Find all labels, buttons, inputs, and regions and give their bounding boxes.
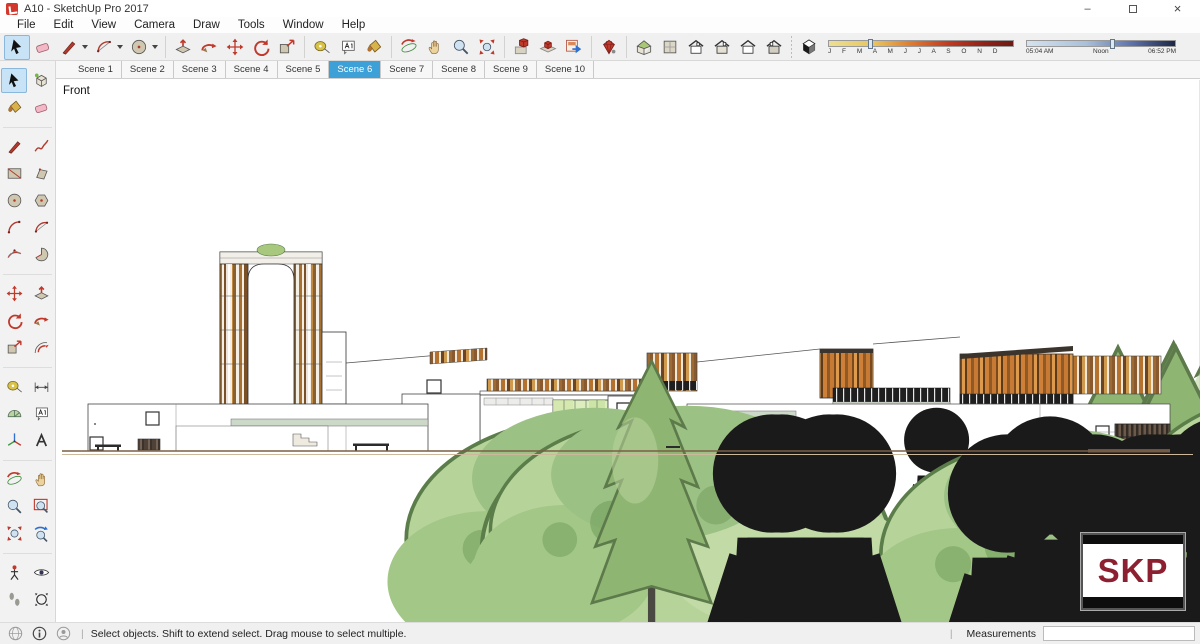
- menu-file[interactable]: File: [8, 17, 45, 33]
- status-separator: |: [81, 628, 84, 640]
- zoom-window-icon: [32, 497, 51, 516]
- select-icon: [5, 71, 24, 90]
- tab-scene-6[interactable]: Scene 6: [329, 61, 381, 78]
- zoom-previous-button[interactable]: [28, 521, 54, 546]
- toolbar-separator: [3, 364, 52, 368]
- rectangle-button[interactable]: [1, 161, 27, 186]
- freehand-icon: [32, 137, 51, 156]
- tab-scene-3[interactable]: Scene 3: [174, 61, 226, 78]
- zoom-icon: [5, 497, 24, 516]
- look-around-button[interactable]: [28, 560, 54, 585]
- zoom-extents-icon: [5, 524, 24, 543]
- share-component-button[interactable]: [561, 35, 587, 60]
- status-separator: |: [950, 628, 953, 640]
- offset-button[interactable]: [28, 335, 54, 360]
- pan-tool-button[interactable]: [28, 467, 54, 492]
- follow-me-button[interactable]: [196, 35, 222, 60]
- circle-tool-button[interactable]: [1, 188, 27, 213]
- time-end-label: 06:52 PM: [1148, 48, 1176, 55]
- toolbar-separator: [3, 457, 52, 461]
- tab-scene-2[interactable]: Scene 2: [122, 61, 174, 78]
- move-button[interactable]: [222, 35, 248, 60]
- top-view-icon: [660, 37, 680, 57]
- position-camera-icon: [5, 563, 24, 582]
- circle-icon: [129, 37, 149, 57]
- close-button[interactable]: ×: [1155, 0, 1200, 17]
- share-model-button[interactable]: [535, 35, 561, 60]
- arc-icon: [5, 218, 24, 237]
- select-tool-button[interactable]: [1, 68, 27, 93]
- tab-scene-10[interactable]: Scene 10: [537, 61, 594, 78]
- rotate-icon: [5, 311, 24, 330]
- follow-me-icon: [32, 311, 51, 330]
- three-point-arc-button[interactable]: [1, 242, 27, 267]
- back-view-button[interactable]: [735, 35, 761, 60]
- circle-icon: [5, 191, 24, 210]
- paint-bucket-icon: [5, 98, 24, 117]
- menu-draw[interactable]: Draw: [184, 17, 229, 33]
- orbit-tool-button[interactable]: [1, 467, 27, 492]
- eraser-icon: [32, 98, 51, 117]
- menu-tools[interactable]: Tools: [229, 17, 274, 33]
- scale-tool-button[interactable]: [1, 335, 27, 360]
- text-tool-button[interactable]: [28, 401, 54, 426]
- protractor-icon: [5, 404, 24, 423]
- orbit-icon: [399, 37, 419, 57]
- shadow-time-slider[interactable]: 05:04 AM Noon 06:52 PM: [1026, 40, 1176, 55]
- status-hint: Select objects. Shift to extend select. …: [91, 628, 407, 640]
- right-view-button[interactable]: [709, 35, 735, 60]
- line-icon: [59, 37, 79, 57]
- paint-bucket-button[interactable]: [1, 95, 27, 120]
- make-component-icon: [32, 71, 51, 90]
- rotated-rectangle-button[interactable]: [28, 161, 54, 186]
- right-buildings: [697, 337, 1161, 406]
- top-view-button[interactable]: [657, 35, 683, 60]
- orbit-button[interactable]: [396, 35, 422, 60]
- menu-view[interactable]: View: [82, 17, 125, 33]
- line-icon: [5, 137, 24, 156]
- arch-tower: [220, 244, 346, 404]
- push-pull-icon: [173, 37, 193, 57]
- freehand-button[interactable]: [28, 134, 54, 159]
- move-icon: [5, 284, 24, 303]
- share-component-icon: [564, 37, 584, 57]
- toolbar-separator: [591, 36, 592, 58]
- front-view-icon: [686, 37, 706, 57]
- rotate-icon: [251, 37, 271, 57]
- zoom-window-button[interactable]: [28, 494, 54, 519]
- rectangle-icon: [5, 164, 24, 183]
- arc-tool-button[interactable]: [1, 215, 27, 240]
- pie-icon: [32, 245, 51, 264]
- section-plane-button[interactable]: [28, 587, 54, 612]
- offset-icon: [32, 338, 51, 357]
- minimize-button[interactable]: –: [1065, 0, 1110, 17]
- rotate-button[interactable]: [248, 35, 274, 60]
- text-icon: [32, 404, 51, 423]
- pie-button[interactable]: [28, 242, 54, 267]
- zoom-button[interactable]: [448, 35, 474, 60]
- zoom-previous-icon: [32, 524, 51, 543]
- tab-scene-4[interactable]: Scene 4: [226, 61, 278, 78]
- chevron-down-icon[interactable]: [152, 45, 158, 49]
- text-button[interactable]: [335, 35, 361, 60]
- eraser-button[interactable]: [28, 95, 54, 120]
- back-view-icon: [738, 37, 758, 57]
- tab-scene-8[interactable]: Scene 8: [433, 61, 485, 78]
- menu-help[interactable]: Help: [333, 17, 375, 33]
- time-start-label: 05:04 AM: [1026, 48, 1053, 55]
- tape-measure-icon: [312, 37, 332, 57]
- toolbar-separator: [165, 36, 166, 58]
- left-view-icon: [764, 37, 784, 57]
- dimension-button[interactable]: [28, 374, 54, 399]
- get-models-button[interactable]: [509, 35, 535, 60]
- sketchup-logo-icon: [6, 3, 18, 15]
- walk-icon: [5, 590, 24, 609]
- scale-icon: [277, 37, 297, 57]
- toolbar-separator: [3, 124, 52, 128]
- iso-view-icon: [634, 37, 654, 57]
- 3d-text-icon: [32, 431, 51, 450]
- measurements-input[interactable]: [1043, 626, 1195, 641]
- title-bar: A10 - SketchUp Pro 2017 – ×: [0, 0, 1200, 17]
- account-icon[interactable]: [56, 626, 71, 641]
- axes-button[interactable]: [1, 428, 27, 453]
- large-tool-set: [0, 61, 56, 622]
- follow-me-icon: [199, 37, 219, 57]
- polygon-button[interactable]: [28, 188, 54, 213]
- orbit-icon: [5, 470, 24, 489]
- skp-watermark: SKP: [1081, 533, 1185, 610]
- pan-icon: [32, 470, 51, 489]
- rotate-tool-button[interactable]: [1, 308, 27, 333]
- date-slider-thumb[interactable]: [868, 39, 873, 49]
- tab-scene-9[interactable]: Scene 9: [485, 61, 537, 78]
- circle-button[interactable]: [126, 35, 152, 60]
- arc-button[interactable]: [91, 35, 117, 60]
- scale-button[interactable]: [274, 35, 300, 60]
- two-point-arc-button[interactable]: [28, 215, 54, 240]
- front-view-button[interactable]: [683, 35, 709, 60]
- toolbar-separator: [3, 550, 52, 554]
- tab-scene-1[interactable]: Scene 1: [70, 61, 122, 78]
- move-tool-button[interactable]: [1, 281, 27, 306]
- geolocation-icon[interactable]: [8, 626, 23, 641]
- eraser-button[interactable]: [30, 35, 56, 60]
- protractor-button[interactable]: [1, 401, 27, 426]
- select-button[interactable]: [4, 35, 30, 60]
- tape-measure-tool-button[interactable]: [1, 374, 27, 399]
- push-pull-tool-button[interactable]: [28, 281, 54, 306]
- scene-tabs-bar: Scene 1 Scene 2 Scene 3 Scene 4 Scene 5 …: [56, 61, 1200, 79]
- zoom-extents-tool-button[interactable]: [1, 521, 27, 546]
- paint-bucket-button[interactable]: [361, 35, 387, 60]
- tab-scene-7[interactable]: Scene 7: [381, 61, 433, 78]
- status-bar: | Select objects. Shift to extend select…: [0, 622, 1200, 644]
- maximize-button[interactable]: [1110, 0, 1155, 17]
- time-slider-thumb[interactable]: [1110, 39, 1115, 49]
- measurements-label: Measurements: [967, 628, 1036, 640]
- date-slider-track[interactable]: [828, 40, 1014, 47]
- zoom-tool-button[interactable]: [1, 494, 27, 519]
- scale-icon: [5, 338, 24, 357]
- toolbar-separator: [391, 36, 392, 58]
- toolbar-separator: [791, 36, 792, 58]
- watermark-text: SKP: [1083, 544, 1183, 597]
- three-point-arc-icon: [5, 245, 24, 264]
- model-canvas[interactable]: [56, 80, 1200, 622]
- follow-me-tool-button[interactable]: [28, 308, 54, 333]
- share-model-icon: [538, 37, 558, 57]
- line-tool-button[interactable]: [1, 134, 27, 159]
- arc-icon: [94, 37, 114, 57]
- move-icon: [225, 37, 245, 57]
- zoom-extents-icon: [477, 37, 497, 57]
- tape-measure-icon: [5, 377, 24, 396]
- axes-icon: [5, 431, 24, 450]
- line-button[interactable]: [56, 35, 82, 60]
- watermark-bottom-bar: [1083, 597, 1183, 608]
- tab-scene-5[interactable]: Scene 5: [278, 61, 330, 78]
- info-icon[interactable]: [32, 626, 47, 641]
- zoom-icon: [451, 37, 471, 57]
- iso-view-button[interactable]: [631, 35, 657, 60]
- push-pull-button[interactable]: [170, 35, 196, 60]
- time-noon-label: Noon: [1093, 48, 1109, 55]
- eraser-icon: [33, 37, 53, 57]
- shadows-icon: [799, 37, 819, 57]
- paint-bucket-icon: [364, 37, 384, 57]
- time-slider-track[interactable]: [1026, 40, 1176, 47]
- 3d-text-button[interactable]: [28, 428, 54, 453]
- menu-edit[interactable]: Edit: [45, 17, 83, 33]
- toolbar-separator: [3, 271, 52, 275]
- look-around-icon: [32, 563, 51, 582]
- position-camera-button[interactable]: [1, 560, 27, 585]
- polygon-icon: [32, 191, 51, 210]
- text-icon: [338, 37, 358, 57]
- toolbar-separator: [304, 36, 305, 58]
- date-slider-months: J F M A M J J A S O N D: [828, 48, 1014, 55]
- chevron-down-icon[interactable]: [82, 45, 88, 49]
- menu-bar: File Edit View Camera Draw Tools Window …: [0, 17, 1200, 34]
- walk-button[interactable]: [1, 587, 27, 612]
- shadows-toggle-button[interactable]: [796, 35, 822, 60]
- toolbar-separator: [626, 36, 627, 58]
- maximize-icon: [1129, 5, 1137, 13]
- menu-window[interactable]: Window: [274, 17, 333, 33]
- extension-warehouse-icon: [599, 37, 619, 57]
- window-title: A10 - SketchUp Pro 2017: [24, 3, 149, 15]
- select-icon: [7, 37, 27, 57]
- dimension-icon: [32, 377, 51, 396]
- toolbar-separator: [504, 36, 505, 58]
- get-models-icon: [512, 37, 532, 57]
- chevron-down-icon[interactable]: [117, 45, 123, 49]
- make-component-button[interactable]: [28, 68, 54, 93]
- zoom-extents-button[interactable]: [474, 35, 500, 60]
- model-viewport[interactable]: Front: [56, 80, 1200, 622]
- section-plane-icon: [32, 590, 51, 609]
- elevation-drawing: [62, 244, 1200, 622]
- tape-measure-button[interactable]: [309, 35, 335, 60]
- pan-icon: [425, 37, 445, 57]
- extension-warehouse-button[interactable]: [596, 35, 622, 60]
- watermark-top-bar: [1083, 535, 1183, 544]
- top-toolbar: J F M A M J J A S O N D 05:04 AM Noon 06…: [0, 34, 1200, 61]
- rotated-rectangle-icon: [32, 164, 51, 183]
- two-point-arc-icon: [32, 218, 51, 237]
- right-view-icon: [712, 37, 732, 57]
- menu-camera[interactable]: Camera: [125, 17, 184, 33]
- push-pull-icon: [32, 284, 51, 303]
- shadow-date-slider[interactable]: J F M A M J J A S O N D: [828, 40, 1014, 55]
- pan-button[interactable]: [422, 35, 448, 60]
- left-view-button[interactable]: [761, 35, 787, 60]
